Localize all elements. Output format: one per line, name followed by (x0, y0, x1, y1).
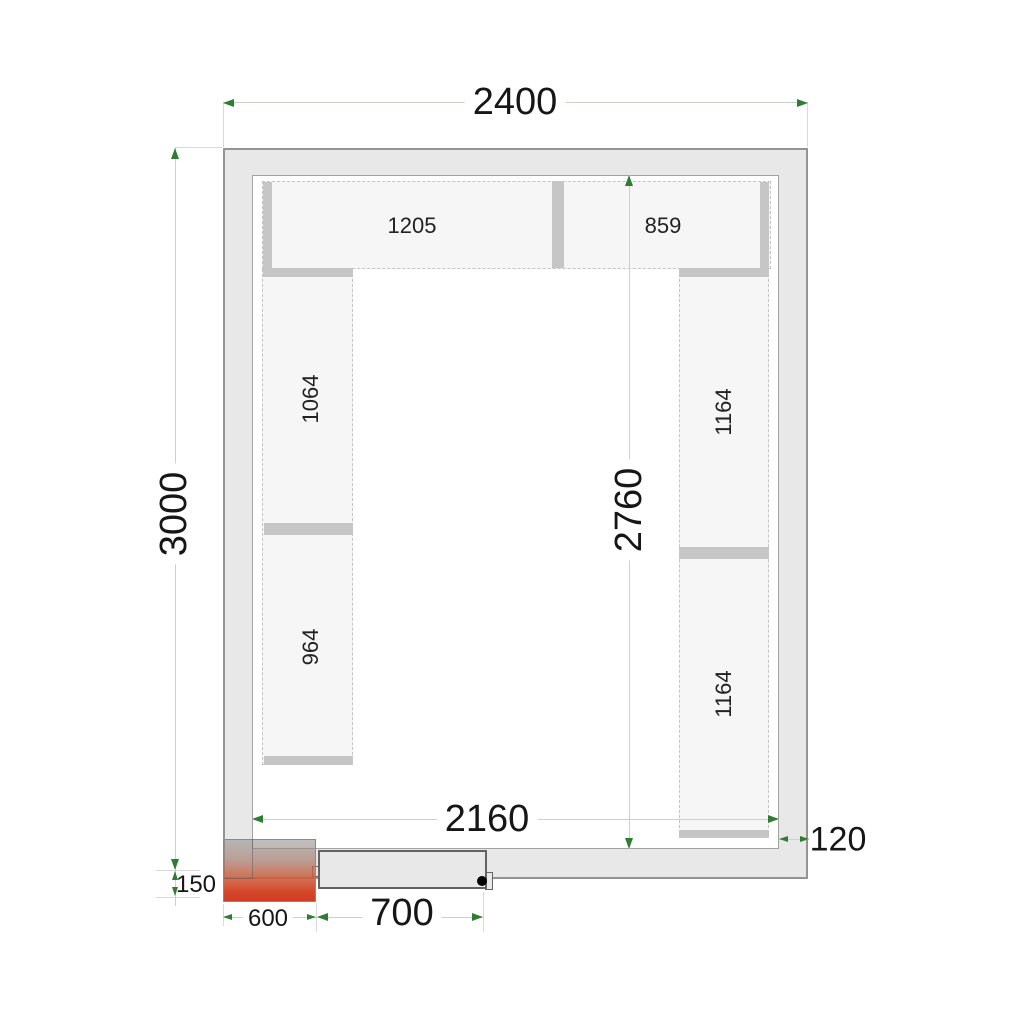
shelf-bracket-topright-horizontal (679, 268, 769, 277)
wall-corner-line-horizontal (224, 878, 253, 879)
dim-600-label: 600 (243, 906, 293, 932)
shelf-left-column (262, 269, 353, 765)
shelf-label-right-lower: 1164 (711, 670, 737, 717)
wall-corner-line-vertical (252, 839, 253, 879)
shelf-top-row (262, 181, 771, 269)
dim-700-label: 700 (362, 893, 441, 935)
shelf-label-top-left: 1205 (388, 213, 437, 239)
dim-2400-label: 2400 (465, 82, 566, 124)
dim-600-arrow-right (307, 914, 316, 920)
shelf-label-left-lower: 964 (298, 629, 324, 666)
monoblock-unit (223, 839, 316, 902)
dim-600-arrow-left (223, 914, 232, 920)
dim-2160-arrow-left (252, 815, 263, 823)
shelf-end-left-column (264, 756, 353, 765)
dim-3000-arrow-bottom (171, 859, 179, 870)
dim-120-label: 120 (802, 821, 875, 858)
dim-3000-extension-top (175, 147, 222, 148)
dim-150-label: 150 (171, 872, 221, 898)
dim-2760-arrow-top (625, 175, 633, 186)
dim-2400-extension-left (223, 103, 224, 147)
shelf-divider-right-column (679, 547, 769, 559)
floor-plan-canvas: 1205 859 1064 964 1164 1164 2400 3000 15… (0, 0, 1024, 1024)
shelf-label-right-upper: 1164 (711, 388, 737, 435)
shelf-divider-left-column (264, 523, 353, 535)
dim-2160-label: 2160 (437, 799, 538, 841)
dim-2400-extension-right (807, 103, 808, 147)
dim-700-arrow-right (472, 913, 483, 921)
dim-120-arrow-left (779, 836, 788, 842)
dim-700-extension-right (483, 892, 484, 932)
dim-2760-label: 2760 (609, 460, 651, 561)
dim-2400-arrow-left (223, 99, 234, 107)
shelf-label-top-right: 859 (645, 213, 682, 239)
dim-2760-arrow-bottom (625, 838, 633, 849)
shelf-end-right-column (679, 830, 769, 838)
shelf-bracket-topright-vertical (760, 182, 769, 277)
dim-700-arrow-left (317, 913, 328, 921)
dim-2400-arrow-right (797, 99, 808, 107)
dim-2160-arrow-right (768, 815, 779, 823)
shelf-bracket-topleft-vertical (263, 182, 272, 277)
door-handle-dot (477, 876, 487, 886)
shelf-label-left-upper: 1064 (298, 375, 324, 424)
shelf-divider-top-row (552, 181, 564, 268)
dim-3000-arrow-top (171, 148, 179, 159)
shelf-bracket-topleft-horizontal (263, 268, 353, 277)
dim-3000-label: 3000 (154, 464, 196, 565)
door-leaf (318, 850, 487, 889)
